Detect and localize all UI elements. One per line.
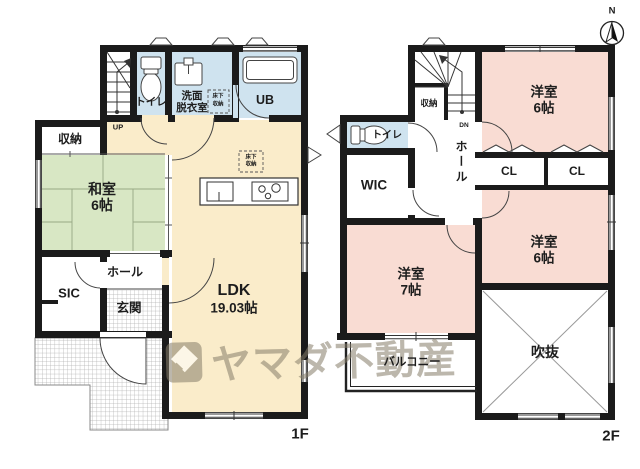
closet-label-cl-left: CL — [501, 165, 517, 177]
underfloor-label-1: 床下 — [212, 94, 223, 100]
room-label-shuno-2f: 収納 — [420, 99, 437, 108]
room-label-senmen-2: 脱衣室 — [176, 103, 208, 114]
room-label-yoshitsu-c: 洋室 — [398, 267, 425, 281]
room-label-hall-2f: ホール — [455, 140, 467, 185]
stairs-label-up: UP — [113, 123, 123, 131]
compass-north-label: N — [609, 6, 616, 16]
stairs-1f — [107, 52, 131, 114]
floor2-label: 2F — [602, 429, 620, 444]
underfloor-label-2: 収納 — [212, 102, 223, 108]
watermark-logo-icon — [166, 342, 203, 383]
room-label-yoshitsu-b: 洋室 — [531, 235, 558, 249]
room-size-yoshitsu-c: 7帖 — [400, 283, 421, 297]
toilet-icon-1f — [141, 57, 161, 101]
room-label-toilet-2f: トイレ — [372, 131, 402, 141]
room-label-wic: WIC — [361, 178, 387, 192]
room-size-yoshitsu-a: 6帖 — [533, 101, 554, 115]
room-size-washitsu: 6帖 — [91, 198, 113, 212]
room-label-balcony: バルコニー — [383, 357, 440, 369]
floorplan-canvas: 収納 トイレ 洗面 脱衣室 床下 収納 UB UP 和室 6帖 LDK 19.0… — [0, 0, 640, 469]
closet-label-cl-right: CL — [569, 165, 585, 177]
room-label-senmen-1: 洗面 — [182, 91, 203, 102]
room-label-hall-1f: ホール — [107, 266, 143, 278]
room-label-shuno-1f: 収納 — [58, 133, 82, 145]
underfloor-ldk-label-1: 床下 — [245, 155, 256, 161]
room-label-yoshitsu-a: 洋室 — [531, 85, 558, 99]
compass-icon — [601, 22, 624, 45]
room-size-ldk: 19.03帖 — [210, 301, 257, 315]
room-label-toilet-1f: トイレ — [135, 97, 167, 108]
stairs-label-dn: DN — [459, 123, 468, 130]
vent-triangle-right — [308, 147, 321, 163]
underfloor-ldk-label-2: 収納 — [245, 162, 256, 168]
room-label-fukinuke: 吹抜 — [531, 345, 559, 359]
floor2-door-gaps — [408, 122, 482, 225]
vent-triangle-left — [327, 125, 340, 143]
room-label-sic: SIC — [58, 287, 80, 300]
room-label-washitsu: 和室 — [88, 182, 116, 196]
floor1-label: 1F — [291, 427, 309, 442]
room-label-ldk: LDK — [218, 283, 251, 299]
room-label-ub: UB — [256, 94, 274, 107]
room-size-yoshitsu-b: 6帖 — [533, 251, 554, 265]
room-label-genkan: 玄関 — [116, 302, 141, 315]
bathtub-icon — [243, 57, 297, 83]
kitchen-counter — [200, 178, 298, 205]
